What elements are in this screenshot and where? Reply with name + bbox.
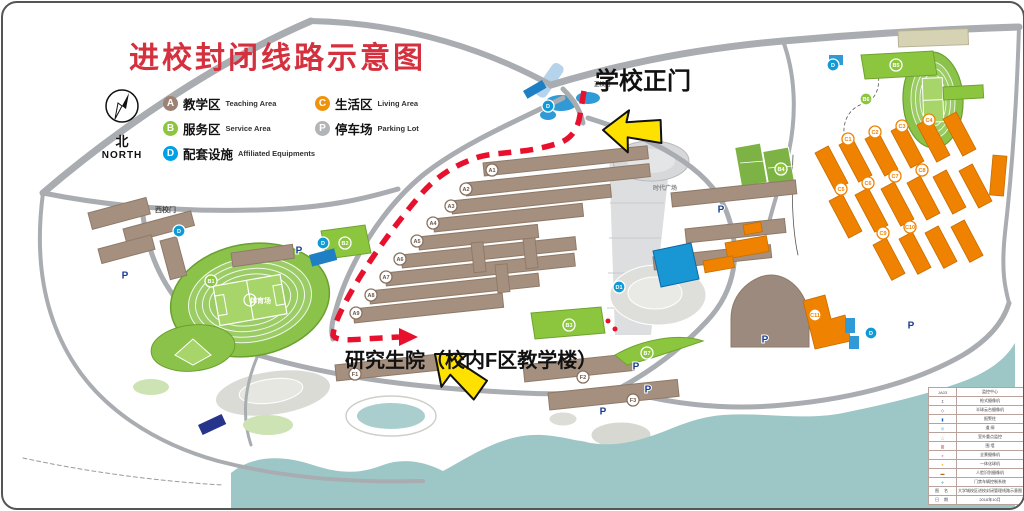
legend-label: 生活区 (335, 94, 373, 113)
map-marker-C2: C2 (869, 126, 881, 138)
svg-text:B5: B5 (892, 63, 899, 69)
library (653, 243, 699, 287)
map-label: 时代广场 (653, 184, 677, 192)
svg-text:D: D (831, 63, 835, 69)
svg-text:A9: A9 (352, 311, 359, 317)
map-marker-D1: D1 (613, 281, 625, 293)
compass: 北 NORTH (95, 87, 149, 161)
legend-table-row: ✚门禁车辆控制系统 (929, 478, 1024, 487)
map-legend: A 教学区 Teaching Area C 生活区 Living Area B … (163, 91, 465, 166)
svg-text:P: P (122, 271, 129, 282)
legend-item-service: B 服务区 Service Area (163, 116, 315, 141)
map-title: 进校封闭线路示意图 (129, 33, 426, 77)
map-marker-C1: C1 (842, 133, 854, 145)
svg-text:F2: F2 (580, 375, 586, 381)
svg-text:D: D (546, 104, 550, 110)
legend-label-en: Living Area (378, 99, 419, 108)
map-marker-C6: C6 (862, 177, 874, 189)
legend-table-row: ↥枪式摄像机 (929, 397, 1024, 406)
svg-text:P: P (633, 362, 640, 373)
map-marker-P: P (122, 271, 129, 282)
svg-text:B2: B2 (341, 241, 348, 247)
svg-text:C5: C5 (837, 187, 844, 193)
compass-north-zh: 北 (95, 131, 149, 150)
svg-text:P: P (908, 321, 915, 332)
svg-text:A6: A6 (396, 257, 403, 263)
svg-text:B7: B7 (643, 351, 650, 357)
map-marker-P: P (600, 407, 607, 418)
map-marker-D: D (827, 59, 839, 71)
legend-label: 服务区 (183, 119, 221, 138)
legend-table-row: △室外重点监控 (929, 433, 1024, 442)
legend-table-row: ◎道 闸 (929, 424, 1024, 433)
legend-label-en: Teaching Area (226, 99, 277, 108)
facilities-badge: D (163, 146, 178, 161)
svg-text:C11: C11 (810, 313, 820, 319)
svg-text:C1: C1 (844, 137, 851, 143)
legend-label: 教学区 (183, 94, 221, 113)
map-marker-B2: B2 (339, 237, 351, 249)
legend-label: 停车场 (335, 119, 373, 138)
map-marker-A5: A5 (411, 235, 423, 247)
legend-item-parking: P 停车场 Parking Lot (315, 116, 465, 141)
svg-text:C3: C3 (898, 124, 905, 130)
map-label: 西校门 (155, 205, 176, 214)
legend-table-footer-row: 图 名大学城校区进校封闭管理线路示意图 (929, 487, 1024, 496)
legend-item-living: C 生活区 Living Area (315, 91, 465, 116)
legend-label: 配套设施 (183, 144, 233, 163)
svg-text:C4: C4 (925, 118, 933, 124)
map-marker-B6: B6 (860, 93, 872, 105)
svg-text:A3: A3 (447, 204, 454, 210)
svg-text:F3: F3 (630, 398, 636, 404)
svg-text:C7: C7 (891, 174, 898, 180)
map-marker-C4: C4 (923, 114, 935, 126)
svg-text:D: D (177, 229, 181, 235)
round-pond (357, 403, 425, 429)
map-marker-A8: A8 (365, 289, 377, 301)
svg-text:B1: B1 (207, 279, 214, 285)
svg-text:P: P (762, 335, 769, 346)
map-marker-B3: B3 (563, 319, 575, 331)
svg-text:C9: C9 (879, 231, 886, 237)
legend-table-row: ◇半球云台摄像机 (929, 406, 1024, 415)
campus-map-svg: 西校门正校门时代广场体育场 A1A2A3A4A5A6A7A8A9F1F2F3B1… (3, 3, 1023, 508)
campus-map-canvas: 西校门正校门时代广场体育场 A1A2A3A4A5A6A7A8A9F1F2F3B1… (1, 1, 1024, 510)
map-marker-A9: A9 (350, 307, 362, 319)
security-legend-table: JA03监控中心↥枪式摄像机◇半球云台摄像机▮报警柱◎道 闸△室外重点监控▥围 … (928, 387, 1024, 505)
legend-label-en: Service Area (226, 124, 271, 133)
parking-badge: P (315, 121, 330, 136)
svg-text:C8: C8 (918, 168, 925, 174)
map-marker-C11: C11 (809, 309, 821, 321)
legend-table-row: ▥围 墙 (929, 442, 1024, 451)
map-marker-C8: C8 (916, 164, 928, 176)
svg-text:B3: B3 (565, 323, 572, 329)
map-marker-B5: B5 (890, 59, 902, 71)
svg-text:B4: B4 (777, 167, 785, 173)
grad-school-label: 研究生院（校内F区教学楼） (345, 344, 597, 373)
svg-text:P: P (296, 246, 303, 257)
dome-hall (731, 275, 809, 347)
svg-text:A2: A2 (462, 187, 469, 193)
map-marker-D: D (173, 225, 185, 237)
legend-table-row: ●全景摄像机 (929, 451, 1024, 460)
svg-text:A4: A4 (429, 221, 437, 227)
svg-text:A1: A1 (488, 168, 495, 174)
map-marker-P: P (762, 335, 769, 346)
map-marker-B7: B7 (641, 347, 653, 359)
map-marker-A6: A6 (394, 253, 406, 265)
legend-table-row: ▬人脸识别摄像机 (929, 469, 1024, 478)
map-marker-B1: B1 (205, 275, 217, 287)
legend-item-facilities: D 配套设施 Affiliated Equipments (163, 141, 315, 166)
svg-text:D: D (869, 331, 873, 337)
map-label: 体育场 (250, 296, 271, 305)
map-marker-F3: F3 (627, 394, 639, 406)
legend-table-footer-row: 日 期2016年10月 (929, 496, 1024, 505)
map-marker-P: P (908, 321, 915, 332)
map-marker-D: D (865, 327, 877, 339)
map-marker-C10: C10 (904, 221, 916, 233)
map-marker-P: P (645, 385, 652, 396)
svg-text:C10: C10 (905, 225, 915, 231)
map-marker-A3: A3 (445, 200, 457, 212)
map-marker-D: D (542, 100, 554, 112)
svg-text:D: D (321, 241, 325, 247)
svg-text:D1: D1 (615, 285, 622, 291)
compass-north-en: NORTH (95, 150, 149, 161)
map-marker-P: P (718, 205, 725, 216)
svg-text:P: P (645, 385, 652, 396)
legend-table-row: ▮报警柱 (929, 415, 1024, 424)
svg-text:B6: B6 (862, 97, 869, 103)
map-marker-P: P (633, 362, 640, 373)
svg-text:P: P (718, 205, 725, 216)
service-badge: B (163, 121, 178, 136)
living-badge: C (315, 96, 330, 111)
svg-text:A5: A5 (413, 239, 420, 245)
map-marker-D: D (317, 237, 329, 249)
map-marker-A1: A1 (486, 164, 498, 176)
legend-label-en: Affiliated Equipments (238, 149, 315, 158)
map-marker-C9: C9 (877, 227, 889, 239)
teaching-badge: A (163, 96, 178, 111)
legend-item-teaching: A 教学区 Teaching Area (163, 91, 315, 116)
map-marker-B4: B4 (775, 163, 787, 175)
legend-label-en: Parking Lot (378, 124, 419, 133)
svg-text:A8: A8 (367, 293, 374, 299)
map-marker-A4: A4 (427, 217, 439, 229)
map-marker-P: P (296, 246, 303, 257)
main-gate-label: 学校正门 (595, 61, 691, 96)
svg-text:A7: A7 (382, 275, 389, 281)
legend-table-row: JA03监控中心 (929, 388, 1024, 397)
svg-text:C2: C2 (871, 130, 878, 136)
map-marker-C7: C7 (889, 170, 901, 182)
map-marker-C3: C3 (896, 120, 908, 132)
legend-table-row: ●一体化球机 (929, 460, 1024, 469)
map-marker-A2: A2 (460, 183, 472, 195)
map-marker-C5: C5 (835, 183, 847, 195)
map-marker-A7: A7 (380, 271, 392, 283)
svg-text:P: P (600, 407, 607, 418)
svg-text:C6: C6 (864, 181, 871, 187)
compass-icon (103, 87, 141, 125)
